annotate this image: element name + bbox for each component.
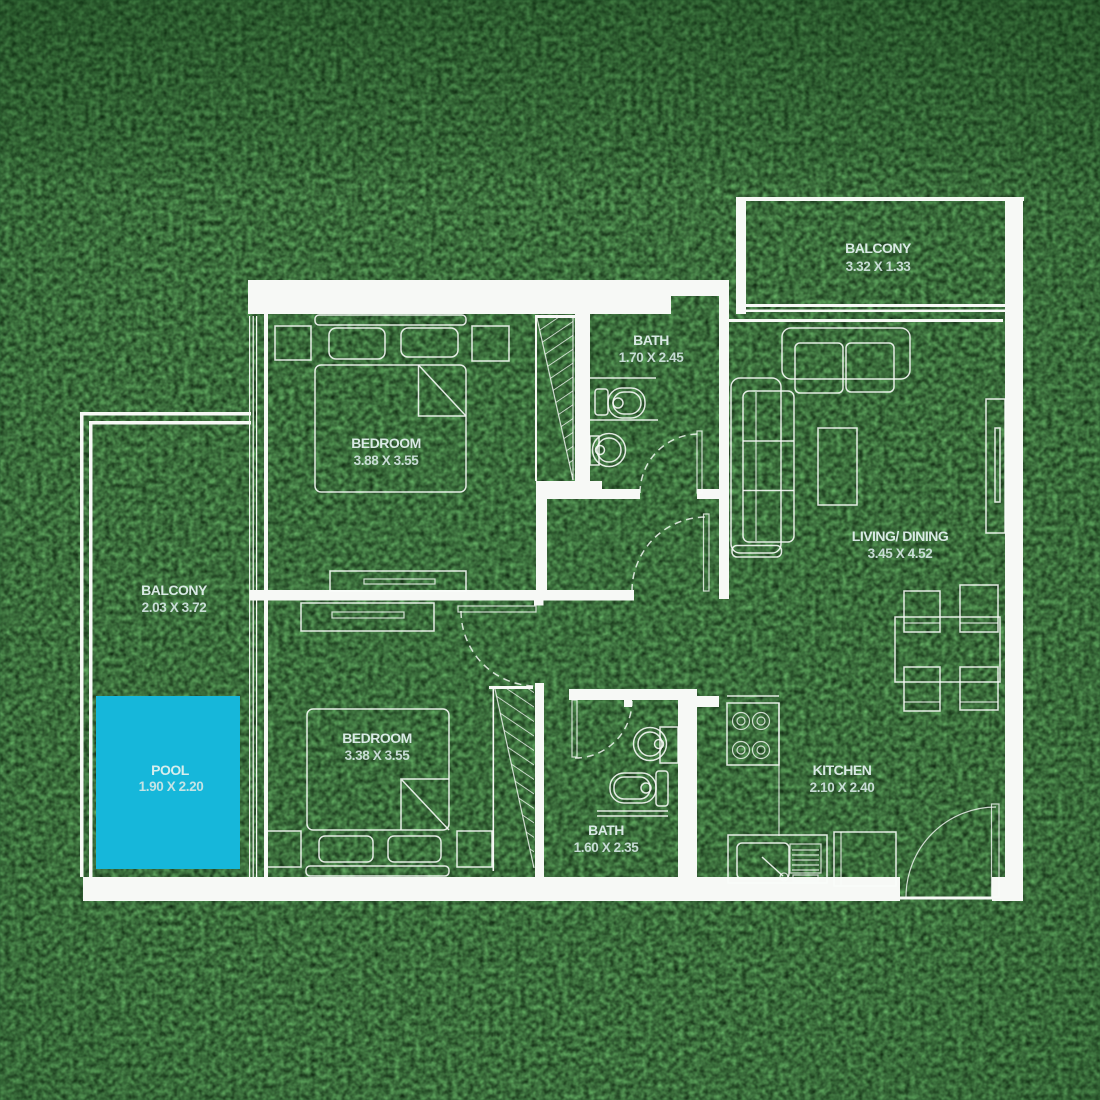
svg-text:BALCONY: BALCONY xyxy=(845,240,912,256)
svg-text:1.70 X 2.45: 1.70 X 2.45 xyxy=(619,350,685,365)
svg-text:2.10 X 2.40: 2.10 X 2.40 xyxy=(810,780,875,795)
svg-text:BEDROOM: BEDROOM xyxy=(342,730,412,746)
svg-text:BALCONY: BALCONY xyxy=(141,582,208,598)
svg-text:3.88 X 3.55: 3.88 X 3.55 xyxy=(354,453,420,468)
svg-text:BATH: BATH xyxy=(633,332,669,348)
svg-text:KITCHEN: KITCHEN xyxy=(813,762,872,778)
svg-text:3.45 X 4.52: 3.45 X 4.52 xyxy=(868,546,933,561)
svg-text:3.38 X 3.55: 3.38 X 3.55 xyxy=(345,748,411,763)
svg-text:2.03 X 3.72: 2.03 X 3.72 xyxy=(142,600,207,615)
svg-text:POOL: POOL xyxy=(151,762,190,778)
svg-text:BATH: BATH xyxy=(588,822,624,838)
svg-text:1.60 X 2.35: 1.60 X 2.35 xyxy=(574,840,640,855)
svg-text:LIVING/ DINING: LIVING/ DINING xyxy=(852,528,949,544)
svg-text:3.32 X 1.33: 3.32 X 1.33 xyxy=(846,259,912,274)
svg-text:BEDROOM: BEDROOM xyxy=(351,435,421,451)
svg-text:1.90 X 2.20: 1.90 X 2.20 xyxy=(139,779,204,794)
